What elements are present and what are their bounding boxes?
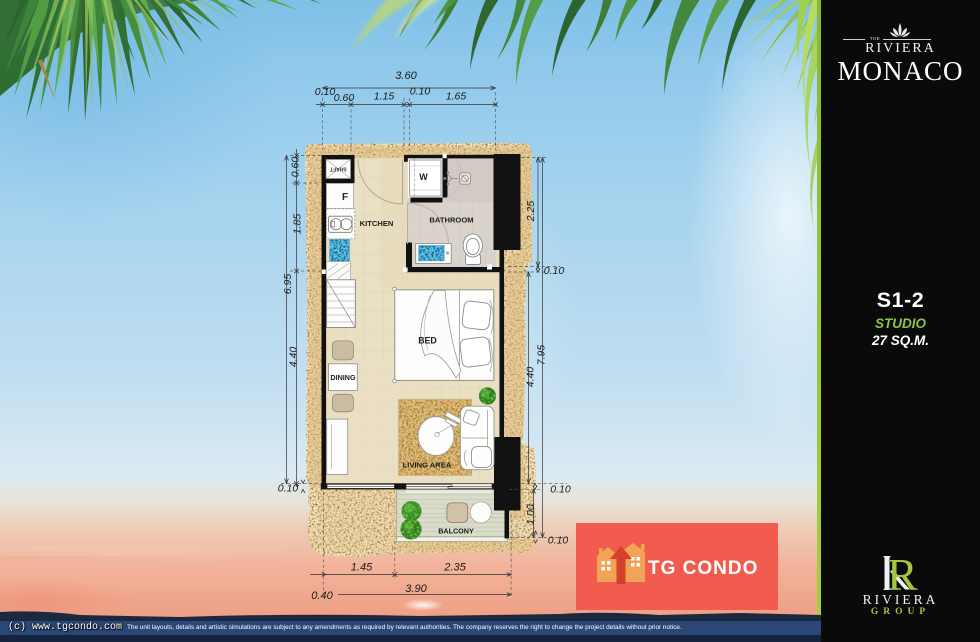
svg-text:0.10: 0.10 <box>550 484 571 496</box>
svg-text:F: F <box>342 192 348 203</box>
svg-text:W: W <box>419 172 428 182</box>
svg-text:0.10: 0.10 <box>278 483 299 495</box>
svg-text:BATHROOM: BATHROOM <box>429 215 473 224</box>
svg-text:0.40: 0.40 <box>311 590 333 602</box>
svg-text:1.00: 1.00 <box>525 504 537 525</box>
svg-text:BED: BED <box>418 336 437 346</box>
svg-text:7.95: 7.95 <box>536 345 548 366</box>
svg-text:3.60: 3.60 <box>395 70 417 82</box>
svg-text:0.60: 0.60 <box>334 92 355 104</box>
svg-text:1.15: 1.15 <box>374 91 395 103</box>
svg-text:0.10: 0.10 <box>544 265 565 277</box>
svg-text:0.60: 0.60 <box>290 157 302 178</box>
svg-text:0.10: 0.10 <box>548 535 569 547</box>
svg-text:6.95: 6.95 <box>282 274 294 295</box>
svg-text:4.40: 4.40 <box>525 367 537 388</box>
svg-text:KITCHEN: KITCHEN <box>360 219 394 228</box>
svg-text:BALCONY: BALCONY <box>438 526 474 535</box>
svg-text:1.85: 1.85 <box>292 214 304 235</box>
svg-text:2.35: 2.35 <box>443 562 466 574</box>
svg-text:2.25: 2.25 <box>525 201 537 223</box>
svg-text:SHAFT: SHAFT <box>330 166 347 172</box>
svg-text:1.45: 1.45 <box>351 562 373 574</box>
svg-text:1.65: 1.65 <box>446 91 467 103</box>
svg-text:DINING: DINING <box>330 373 356 382</box>
svg-text:R: R <box>887 553 918 595</box>
svg-text:0.10: 0.10 <box>315 86 336 98</box>
svg-text:LIVING AREA: LIVING AREA <box>403 460 452 469</box>
svg-text:0.10: 0.10 <box>410 86 431 98</box>
svg-text:3.90: 3.90 <box>405 583 427 595</box>
svg-text:4.40: 4.40 <box>288 347 300 368</box>
